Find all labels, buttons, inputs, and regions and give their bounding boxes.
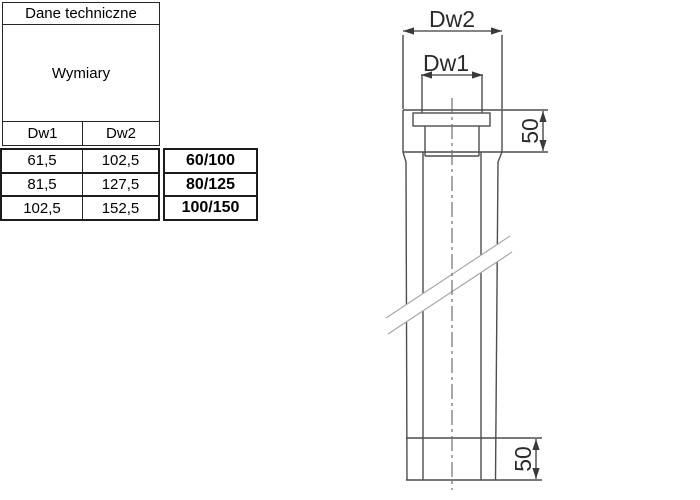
outer-wall-right <box>496 110 503 480</box>
break-line-upper <box>386 236 510 318</box>
dimension-lines <box>403 31 543 479</box>
break-symbol <box>386 236 512 334</box>
outer-wall-left <box>403 110 407 480</box>
dim-label-50-bottom: 50 <box>510 446 536 472</box>
arrow-dw2-right <box>491 27 502 34</box>
dimension-labels: Dw2 Dw1 50 50 <box>423 6 543 472</box>
dim-label-dw2: Dw2 <box>429 6 475 32</box>
break-mask <box>386 236 512 334</box>
page: Dane techniczne Wymiary Dw1 Dw2 61,5 102… <box>0 0 700 500</box>
pipe-drawing: Dw2 Dw1 50 50 <box>0 0 700 500</box>
arrow-dw2-left <box>403 27 414 34</box>
dim-label-50-top: 50 <box>517 118 543 144</box>
dimension-arrows <box>403 27 547 479</box>
dim-label-dw1: Dw1 <box>423 50 469 76</box>
